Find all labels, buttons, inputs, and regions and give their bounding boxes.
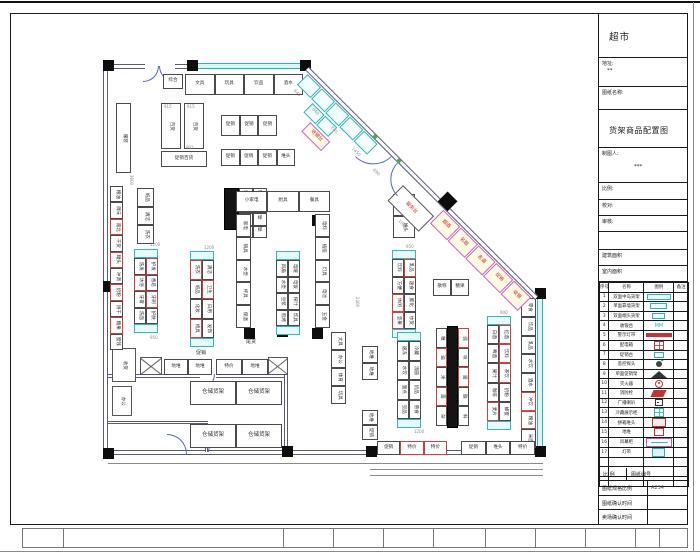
rack-cell[interactable]: 文具 [185, 74, 215, 95]
rack-cell[interactable]: 仓储货架 [190, 381, 236, 405]
rack-cell-label: 乳品 [526, 340, 531, 349]
rack-cell[interactable]: 炒货 [404, 312, 416, 330]
rack-cell[interactable]: 促销 [377, 441, 400, 455]
legend-note [674, 447, 689, 457]
plan-label: 902 [186, 146, 194, 150]
rack-cell[interactable]: 地堆 [362, 410, 378, 425]
rack-cell-label: 仓储货架 [202, 433, 224, 439]
rack-cell[interactable]: 清洁 [137, 207, 154, 226]
shelf-rack[interactable]: 小家电厨具餐具 [236, 191, 330, 212]
rack-cell[interactable]: 促销百货 [161, 151, 207, 167]
wall [284, 374, 288, 452]
room-label: 办公 [120, 396, 125, 405]
rack-cell[interactable]: 麦片 [487, 402, 499, 421]
rack-cell-label: 果汁 [491, 368, 496, 377]
rack-cell-label: 电暖 [292, 264, 297, 273]
rack-cell-label: 促销 [384, 446, 393, 451]
rack-cell[interactable]: 特价 [216, 359, 242, 375]
rack-cell-label: 酱 [461, 375, 466, 380]
rack-cell[interactable]: 体育 [331, 368, 346, 386]
rack-cell[interactable]: 醋 [458, 387, 469, 407]
rack-cell[interactable]: 豆浆 [276, 293, 288, 310]
rack-cell[interactable]: 插座 [315, 237, 330, 260]
legend-row: 4收银台MM [600, 321, 689, 331]
rack-cell-label: 方便 [396, 281, 401, 290]
rack-cell-label: 纸品 [143, 193, 148, 202]
rack-cell[interactable]: 促销 [221, 149, 240, 166]
rack-cell-label: 牙刷 [150, 295, 155, 304]
legend-row: 1双面中岛货架 [600, 292, 689, 302]
legend-header: 序号 [600, 283, 609, 293]
legend-row: 15地堆 [600, 428, 689, 438]
rack-cell-label: 香皂 [150, 278, 155, 287]
rack-cell-label: 地堆 [195, 365, 204, 370]
rack-cell-label: 仓储货架 [248, 390, 270, 396]
room: 收货 [112, 348, 136, 382]
促销台-icon [654, 352, 664, 358]
legend-no: 3 [600, 311, 609, 321]
rack-cell[interactable]: 汤圆 [409, 361, 421, 381]
rack-cell[interactable]: 奶粉 [499, 383, 511, 402]
rack-cell[interactable]: 服装 [116, 103, 131, 173]
rack-cell[interactable]: 南北 [110, 219, 123, 235]
rack-cell[interactable]: 冲饮 [521, 392, 536, 411]
rack-cell[interactable]: 面点 [397, 380, 409, 400]
legend-table: 序号名称图例备注1双面中岛货架2单面靠墙货架3双面端头货架4收银台MM5警示灯带… [599, 282, 689, 487]
rack-cell[interactable]: 梯 [253, 226, 267, 239]
shelf-rack[interactable]: 仓储货架仓储货架 [190, 424, 282, 448]
rack-cell-label: 蜂蜜 [503, 407, 508, 416]
rack-cell-label: 玩具 [336, 390, 341, 399]
rack-cell[interactable]: 玩具 [215, 74, 245, 95]
legend-symbol-cell [644, 428, 674, 438]
rack-cell[interactable]: 饼干 [110, 301, 123, 317]
rack-cell[interactable]: 百货 [161, 103, 181, 149]
plan-label: 950 [150, 336, 158, 340]
rack-cell[interactable]: 特价 [510, 441, 535, 455]
legend-no: 5 [600, 330, 609, 340]
rack-cell-label: 卫生 [206, 285, 211, 294]
rack-cell[interactable]: 面 [436, 387, 447, 407]
shelf-rack[interactable]: 洗发护发沐浴香皂牙膏牙刷洗面护肤 [134, 249, 158, 333]
shelf-rack[interactable]: 洗衣清洁纸品卫生化妆日用梳具发饰 [190, 251, 214, 347]
legend-note [674, 350, 689, 360]
rack-cell-label: 体育 [336, 372, 341, 381]
rack-cell[interactable]: 地堆 [362, 363, 378, 380]
rack-cell[interactable]: 玩具 [331, 386, 346, 404]
shelf-rack[interactable] [447, 326, 458, 428]
title-block-empty-row [599, 232, 688, 250]
footer-confirm2-row: 卖场确认时间 [599, 510, 688, 525]
rack-cell[interactable]: 饮品 [521, 317, 536, 336]
shelf-rack[interactable]: 粮油米面杂 [436, 328, 447, 426]
shelf-rack[interactable]: 百货915 [184, 103, 204, 149]
rack-cell-label: 促销 [244, 123, 253, 128]
rack-cell-label: 保温 [241, 312, 246, 321]
rack-cell-label: 地堆 [368, 367, 373, 376]
rack-cell[interactable]: 味 [458, 348, 469, 368]
rack-cell-label: 速食 [408, 281, 413, 290]
rack-cell[interactable]: 茶饮 [499, 363, 511, 382]
广播喇叭-icon [655, 399, 663, 406]
风幕柜-icon [646, 438, 672, 447]
rack-cell[interactable]: 料 [458, 406, 469, 426]
rack-cell-label: 膨化 [408, 298, 413, 307]
rack-cell[interactable]: 咖啡 [487, 383, 499, 402]
rack-cell[interactable]: 百货 [184, 103, 204, 149]
rack-cell-label: 熟食 [413, 405, 418, 414]
rack-cell[interactable]: 促销 [461, 441, 486, 455]
rack-cell[interactable]: 电暖 [288, 260, 300, 277]
rack-cell[interactable]: 文具 [331, 332, 346, 350]
shelf-rack[interactable]: 文具办公体育玩具 [331, 332, 346, 404]
rack-cell[interactable]: 促销 [362, 425, 378, 440]
rack-cell-label: 面点 [401, 385, 406, 394]
rack-cell[interactable]: 速冻 [397, 341, 409, 361]
title-block-drafter-row: 制图人: *** [599, 148, 688, 183]
legend-name: 监控探头 [609, 360, 644, 370]
shelf-rack[interactable]: 电料插座灯具电池五金 [315, 214, 330, 328]
rack-cell[interactable]: 护肤 [146, 308, 158, 325]
sidewalk-line [108, 463, 543, 464]
rack-cell-label: 清洁 [206, 265, 211, 274]
rack-cell[interactable]: 香皂 [146, 275, 158, 292]
rack-cell[interactable]: 豆品 [397, 400, 409, 420]
rack-cell[interactable]: 方便 [392, 277, 404, 295]
rack-cell-label: 堆头 [493, 446, 502, 451]
footer-confirm2-label: 卖场确认时间 [602, 514, 632, 521]
rack-cell-label: 文具 [195, 82, 204, 87]
structural-column [187, 60, 198, 71]
rack-cell[interactable]: 蜜饯 [110, 334, 123, 350]
rack-cell[interactable]: 罐头 [110, 252, 123, 268]
rack-cell[interactable]: 综合 [163, 74, 183, 89]
title-block-building-area-row: 建筑面积 [599, 250, 688, 266]
legend-name: 地堆 [609, 428, 644, 438]
rack-cell-label: 梯 [258, 217, 263, 222]
rack-cell-label: 麦片 [491, 407, 496, 416]
legend-note [674, 418, 689, 428]
rack-cell[interactable]: 糖果 [110, 317, 123, 333]
rack-cell[interactable]: 地堆 [242, 359, 268, 375]
rack-cell-label: 红酒 [503, 330, 508, 339]
shelf-rack[interactable]: 家电锅具水壶杯具保温 [236, 214, 251, 328]
rack-cell-label: 榨汁 [292, 297, 297, 306]
rack-cell[interactable]: 厨具 [267, 191, 298, 212]
rack-cell[interactable]: 仓储货架 [236, 424, 282, 448]
rack-cell[interactable]: 促销 [258, 149, 277, 166]
rack-cell[interactable]: 纸品 [137, 188, 154, 207]
footer-spec-row: 图纸规格比例 A234 [599, 481, 688, 496]
rack-cell-label: 服装 [121, 133, 126, 142]
legend-note [674, 437, 689, 447]
legend-symbol-cell [644, 388, 674, 398]
footer-strip-divider [585, 529, 586, 547]
rack-cell-label: 餐具 [310, 199, 319, 204]
plan-label: 1200 [414, 430, 424, 434]
rack-cell-label: 饮料 [503, 349, 508, 358]
door-arc[interactable] [143, 66, 159, 82]
legend-note [674, 379, 689, 389]
rack-cell[interactable]: 坚果 [392, 312, 404, 330]
shelf-rack[interactable]: 促销特价特价 [377, 441, 447, 455]
shelf-rack[interactable]: 调味酱醋料 [458, 328, 469, 426]
legend-name: 双面端头货架 [609, 311, 644, 321]
footer-headers-row: 比 例 图纸编号 [599, 468, 688, 481]
plan-label: 900 [500, 311, 508, 315]
rack-cell-label: 豆浆 [280, 297, 285, 306]
rack-cell[interactable]: 奶品 [409, 380, 421, 400]
rack-end-cap [134, 324, 158, 333]
rack-cell[interactable]: 灯具 [315, 260, 330, 283]
legend-no: 16 [600, 437, 609, 447]
legend-empty-cell [609, 457, 644, 467]
shelf-rack[interactable]: 地堆地堆 [164, 359, 212, 375]
legend-note [674, 340, 689, 350]
legend-header: 备注 [674, 283, 689, 293]
rack-cell[interactable]: 洗衣 [190, 260, 202, 280]
legend-symbol-cell [644, 447, 674, 457]
rack-cell-label: 沐浴 [138, 278, 143, 287]
rack-cell[interactable]: 水壶 [236, 260, 251, 283]
rack-cell-label: 风扇 [280, 264, 285, 273]
rack-cell-label: 炒货 [408, 316, 413, 325]
rack-cell[interactable]: 餐具 [299, 191, 330, 212]
legend-name: 促销台 [609, 350, 644, 360]
rack-cell[interactable]: 啤酒 [487, 344, 499, 363]
双面中岛货架-icon [647, 294, 671, 300]
rack-cell[interactable]: 膨化 [404, 294, 416, 312]
shelf-rack[interactable]: 纸品清洁洗衣 [137, 188, 154, 244]
rack-cell-label: 五金 [320, 312, 325, 321]
rack-cell[interactable]: 化妆 [190, 299, 202, 319]
rack-cell-label: 促销 [226, 123, 235, 128]
rack-cell[interactable]: 油 [436, 348, 447, 368]
legend-row: 5警示灯带 [600, 330, 689, 340]
rack-cell[interactable]: 堆头 [486, 441, 511, 455]
rack-cell[interactable]: 堆头 [277, 149, 296, 166]
legend-no: 4 [600, 321, 609, 331]
legend-name: 灯带 [609, 447, 644, 457]
rack-cell-label: 促销 [244, 155, 253, 160]
rack-cell[interactable]: 水饮 [521, 354, 536, 373]
legend-row: 9单面促销架 [600, 369, 689, 379]
rack-cell-label: 汤圆 [413, 366, 418, 375]
rack-cell[interactable]: 熟食 [409, 400, 421, 420]
sheet-footer-strip [22, 528, 688, 548]
rack-cell-label: 锅具 [241, 244, 246, 253]
rack-cell[interactable]: 办公 [331, 350, 346, 368]
rack-cell[interactable]: 速食 [404, 277, 416, 295]
shelf-rack[interactable]: 风扇电暖水壶电饭豆浆榨汁煎烤炊具 [276, 251, 300, 335]
rack-cell-label: 发饰 [206, 324, 211, 333]
警示灯带-icon [646, 333, 672, 337]
rack-end-cap [397, 419, 421, 428]
rack-cell[interactable]: 五金 [315, 305, 330, 328]
rack-cell[interactable]: 粮油 [110, 186, 123, 202]
rack-cell[interactable]: 酒水 [521, 373, 536, 392]
rack-cell[interactable]: 地堆 [164, 359, 188, 375]
rack-cell[interactable]: 奶粉 [110, 284, 123, 300]
rack-cell-label: 杂 [439, 414, 444, 419]
legend-note [674, 408, 689, 418]
rack-cell[interactable]: 锅具 [236, 237, 251, 260]
footer-scale-header: 比 例 [603, 471, 615, 478]
shelf-rack[interactable]: 服装 [116, 103, 131, 173]
footer-confirm1-label: 图纸确认时间 [602, 500, 632, 507]
rack-cell[interactable]: 清洁 [202, 260, 214, 280]
legend-no: 17 [600, 447, 609, 457]
rack-cell[interactable]: 仓储货架 [236, 381, 282, 405]
shelf-rack[interactable]: 促销堆头特价 [461, 441, 535, 455]
title-block: 超市 地址: ** 图纸名称: 货架商品配置图 制图人: *** 比例: 校对:… [598, 13, 688, 525]
rack-cell[interactable]: 日用 [202, 299, 214, 319]
rack-cell[interactable]: 水饺 [397, 361, 409, 381]
shelf-rack[interactable]: 地堆地堆 [362, 346, 378, 380]
rack-cell[interactable]: 煎烤 [276, 310, 288, 327]
rack-cell-label: 调味 [114, 206, 119, 215]
footer-strip-divider [333, 529, 334, 547]
rack-end-cap [276, 326, 300, 335]
rack-cell[interactable]: 炊具 [288, 310, 300, 327]
rack-cell[interactable]: 米 [436, 367, 447, 387]
rack-cell-label: 坚果 [396, 316, 401, 325]
rack-cell[interactable]: 粮 [436, 328, 447, 348]
rack-cell[interactable]: 发饰 [202, 319, 214, 339]
legend-no: 15 [600, 428, 609, 438]
shelf-rack[interactable]: 速冻冷藏水饺汤圆面点奶品豆品熟食 [397, 332, 421, 428]
shelf-rack[interactable]: 特价地堆 [216, 359, 268, 375]
rack-cell[interactable]: 酱 [458, 367, 469, 387]
rack-cell[interactable]: 粮油 [521, 411, 536, 430]
rack-cell[interactable]: 特价 [424, 441, 447, 455]
legend-note [674, 369, 689, 379]
legend-name: 单面靠墙货架 [609, 302, 644, 312]
rack-cell[interactable]: 调味 [110, 202, 123, 218]
rack-cell[interactable]: 饮料 [499, 344, 511, 363]
rack-cell[interactable]: 梯 [253, 213, 267, 226]
rack-cell[interactable]: 电池 [315, 282, 330, 305]
page-right-line [693, 2, 694, 551]
shelf-rack[interactable]: 地堆促销 [362, 410, 378, 440]
title-block-drawing-name-row: 货架商品配置图 [599, 110, 688, 148]
rack-cell[interactable]: 洗发 [134, 258, 146, 275]
rack-cell[interactable]: 洗面 [134, 308, 146, 325]
rack-cell[interactable]: 调 [458, 328, 469, 348]
diagonal-dimension: 640 [293, 89, 302, 98]
rack-cell[interactable]: 纸品 [190, 280, 202, 300]
shelf-rack[interactable]: 仓储货架仓储货架 [190, 381, 282, 405]
rack-cell[interactable]: 电饭 [288, 277, 300, 294]
rack-cell[interactable]: 乳品 [521, 336, 536, 355]
rack-cell[interactable]: 梳具 [190, 319, 202, 339]
rack-cell-label: 电料 [320, 221, 325, 230]
plan-label: 尾货 [246, 340, 256, 345]
rack-cell[interactable]: 水壶 [276, 277, 288, 294]
rack-cell[interactable]: 促销 [221, 115, 240, 136]
rack-cell[interactable]: 冷藏 [409, 341, 421, 361]
rack-cell[interactable]: 干货 [110, 235, 123, 251]
rack-cell-label: 煎烤 [280, 313, 285, 322]
rack-cell-label: 护肤 [150, 311, 155, 320]
rack-cell[interactable]: 特价 [400, 441, 423, 455]
rack-cell-label: 面 [439, 394, 444, 399]
rack-cell-label: 饮品 [526, 322, 531, 331]
rack-cell[interactable]: 冲调 [110, 268, 123, 284]
rack-cell[interactable]: 促销 [240, 149, 259, 166]
rack-cell[interactable]: 饮品 [244, 74, 274, 95]
单面促销架-icon [651, 371, 667, 378]
rack-cell-label: 料 [461, 414, 466, 419]
rack-cell-label: 梯 [258, 229, 263, 234]
shelf-rack[interactable]: 促销百货 [161, 151, 207, 167]
rack-cell[interactable]: 休闲 [392, 294, 404, 312]
rack-cell-label: 灯具 [320, 266, 325, 275]
shelf-rack[interactable]: 综合 [163, 74, 183, 89]
legend-no: 7 [600, 350, 609, 360]
shelf-rack[interactable]: 粮油调味南北干货罐头冲调奶粉饼干糖果蜜饯 [110, 186, 123, 350]
rack-cell-label: 特价 [431, 446, 440, 451]
address-value: ** [607, 68, 613, 74]
legend-no: 8 [600, 360, 609, 370]
legend-note [674, 302, 689, 312]
rack-cell[interactable]: 电料 [315, 214, 330, 237]
rack-cell[interactable]: 护发 [146, 258, 158, 275]
rack-cell[interactable]: 牙刷 [146, 291, 158, 308]
rack-cell[interactable]: 饮料 [392, 259, 404, 277]
rack-cell[interactable]: 卫生 [202, 280, 214, 300]
rack-cell[interactable]: 地堆 [362, 346, 378, 363]
legend-name: 警示灯带 [609, 330, 644, 340]
rack-cell[interactable]: 榨汁 [288, 293, 300, 310]
rack-cell[interactable]: 牙膏 [134, 291, 146, 308]
rack-cell-label: 水壶 [280, 280, 285, 289]
shelf-rack[interactable]: 促销促销促销堆头 [221, 149, 295, 166]
rack-cell[interactable]: 蜂蜜 [499, 402, 511, 421]
legend-row: 17灯带 [600, 447, 689, 457]
diagonal-cell-label: 促销 [493, 273, 503, 283]
rack-cell[interactable]: 仓储货架 [190, 424, 236, 448]
legend-name: 收银台 [609, 321, 644, 331]
legend-symbol-cell [644, 408, 674, 418]
rack-cell[interactable]: 地堆 [188, 359, 212, 375]
legend-note [674, 321, 689, 331]
rack-cell-label: 南北 [114, 222, 119, 231]
shelf-rack[interactable]: 零食饮品乳品水饮酒水冲饮粮油米面 [521, 298, 536, 448]
rack-cell[interactable]: 风扇 [276, 260, 288, 277]
rack-cell[interactable]: 小家电 [236, 191, 267, 212]
legend-name: 广播喇叭 [609, 398, 644, 408]
rack-cell-label: 仓储货架 [202, 390, 224, 396]
冷藏展示柜-icon [654, 408, 664, 417]
rack-cell[interactable]: 杂 [436, 406, 447, 426]
door-arc[interactable] [167, 434, 187, 454]
rack-cell-label: 护发 [150, 262, 155, 271]
legend-symbol-cell [644, 340, 674, 350]
shelf-rack[interactable]: 百货915 [161, 103, 181, 149]
rack-cell[interactable]: 果汁 [487, 363, 499, 382]
structural-column [282, 446, 293, 457]
legend-name: 配电箱 [609, 340, 644, 350]
rack-cell-label: 化妆 [194, 304, 199, 313]
rack-cell[interactable]: 沐浴 [134, 275, 146, 292]
监控探头-icon [656, 361, 662, 367]
rack-cell[interactable]: 保温 [236, 305, 251, 328]
rack-cell[interactable]: 杯具 [236, 282, 251, 305]
rack-cell[interactable]: 家电 [236, 214, 251, 237]
rack-cell[interactable]: 促销 [240, 115, 259, 136]
structural-column [366, 446, 377, 457]
